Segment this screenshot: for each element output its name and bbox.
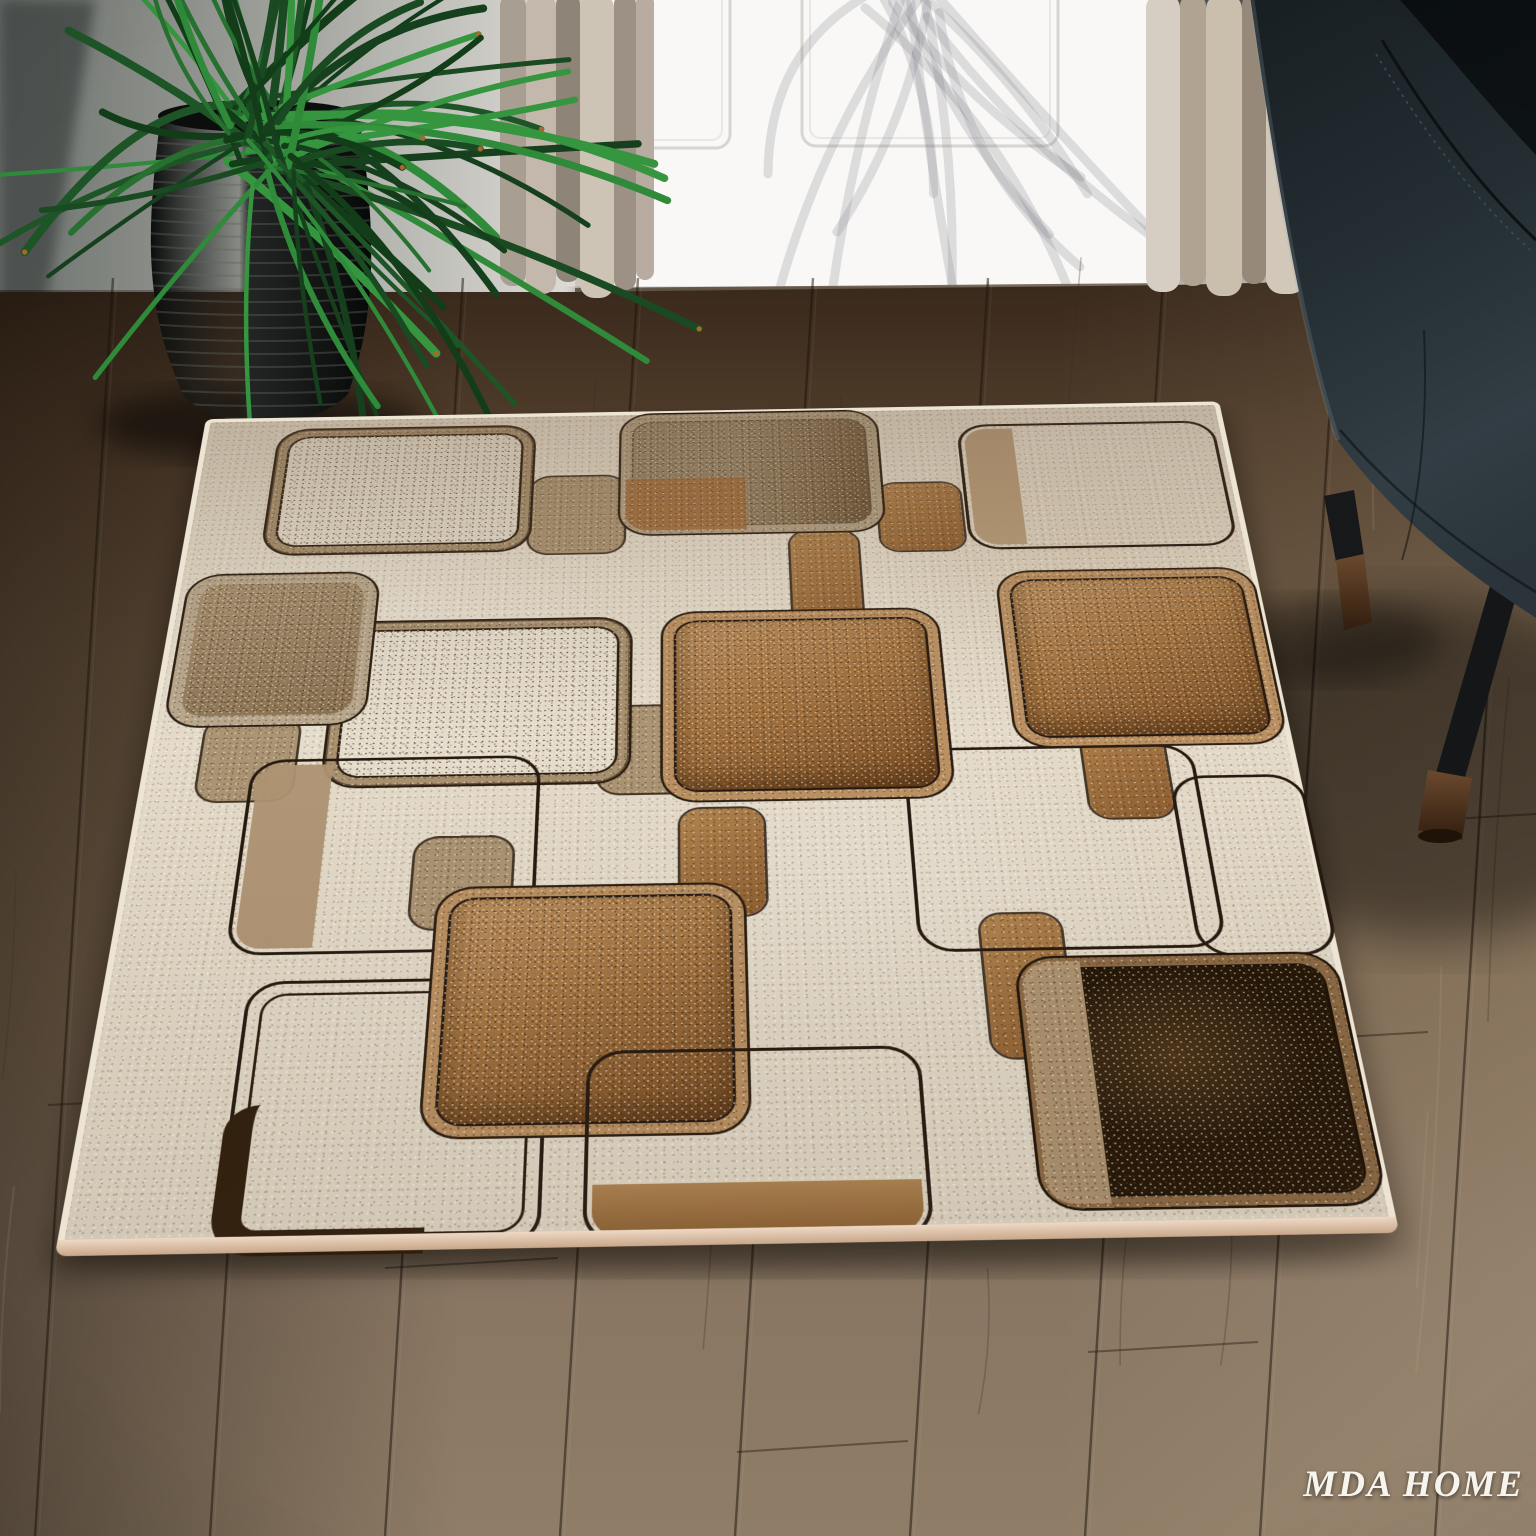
rug-square xyxy=(165,573,379,727)
rug-square-inner xyxy=(276,434,522,545)
rug-square xyxy=(997,568,1287,746)
rug-square-inner xyxy=(180,582,365,716)
rug-square-inner xyxy=(1011,577,1272,736)
area-rug xyxy=(55,401,1399,1253)
watermark-text: MDA HOME xyxy=(1303,1463,1524,1506)
rug-square-inner xyxy=(337,628,617,777)
rug-square-accent xyxy=(234,764,333,949)
rug-square xyxy=(582,1045,935,1245)
rug-square-inner xyxy=(676,618,939,790)
rug-square xyxy=(620,411,885,535)
rug-square xyxy=(663,609,954,801)
rug-square xyxy=(1016,953,1386,1209)
rug-square-accent xyxy=(963,428,1027,544)
rug-square xyxy=(262,426,534,554)
rug-square-accent xyxy=(625,477,747,530)
rug-square xyxy=(956,420,1239,549)
rug-square xyxy=(877,483,966,551)
rug-pattern xyxy=(63,405,1390,1248)
rug-square xyxy=(528,476,625,554)
room-photo: MDA HOME xyxy=(0,0,1536,1536)
